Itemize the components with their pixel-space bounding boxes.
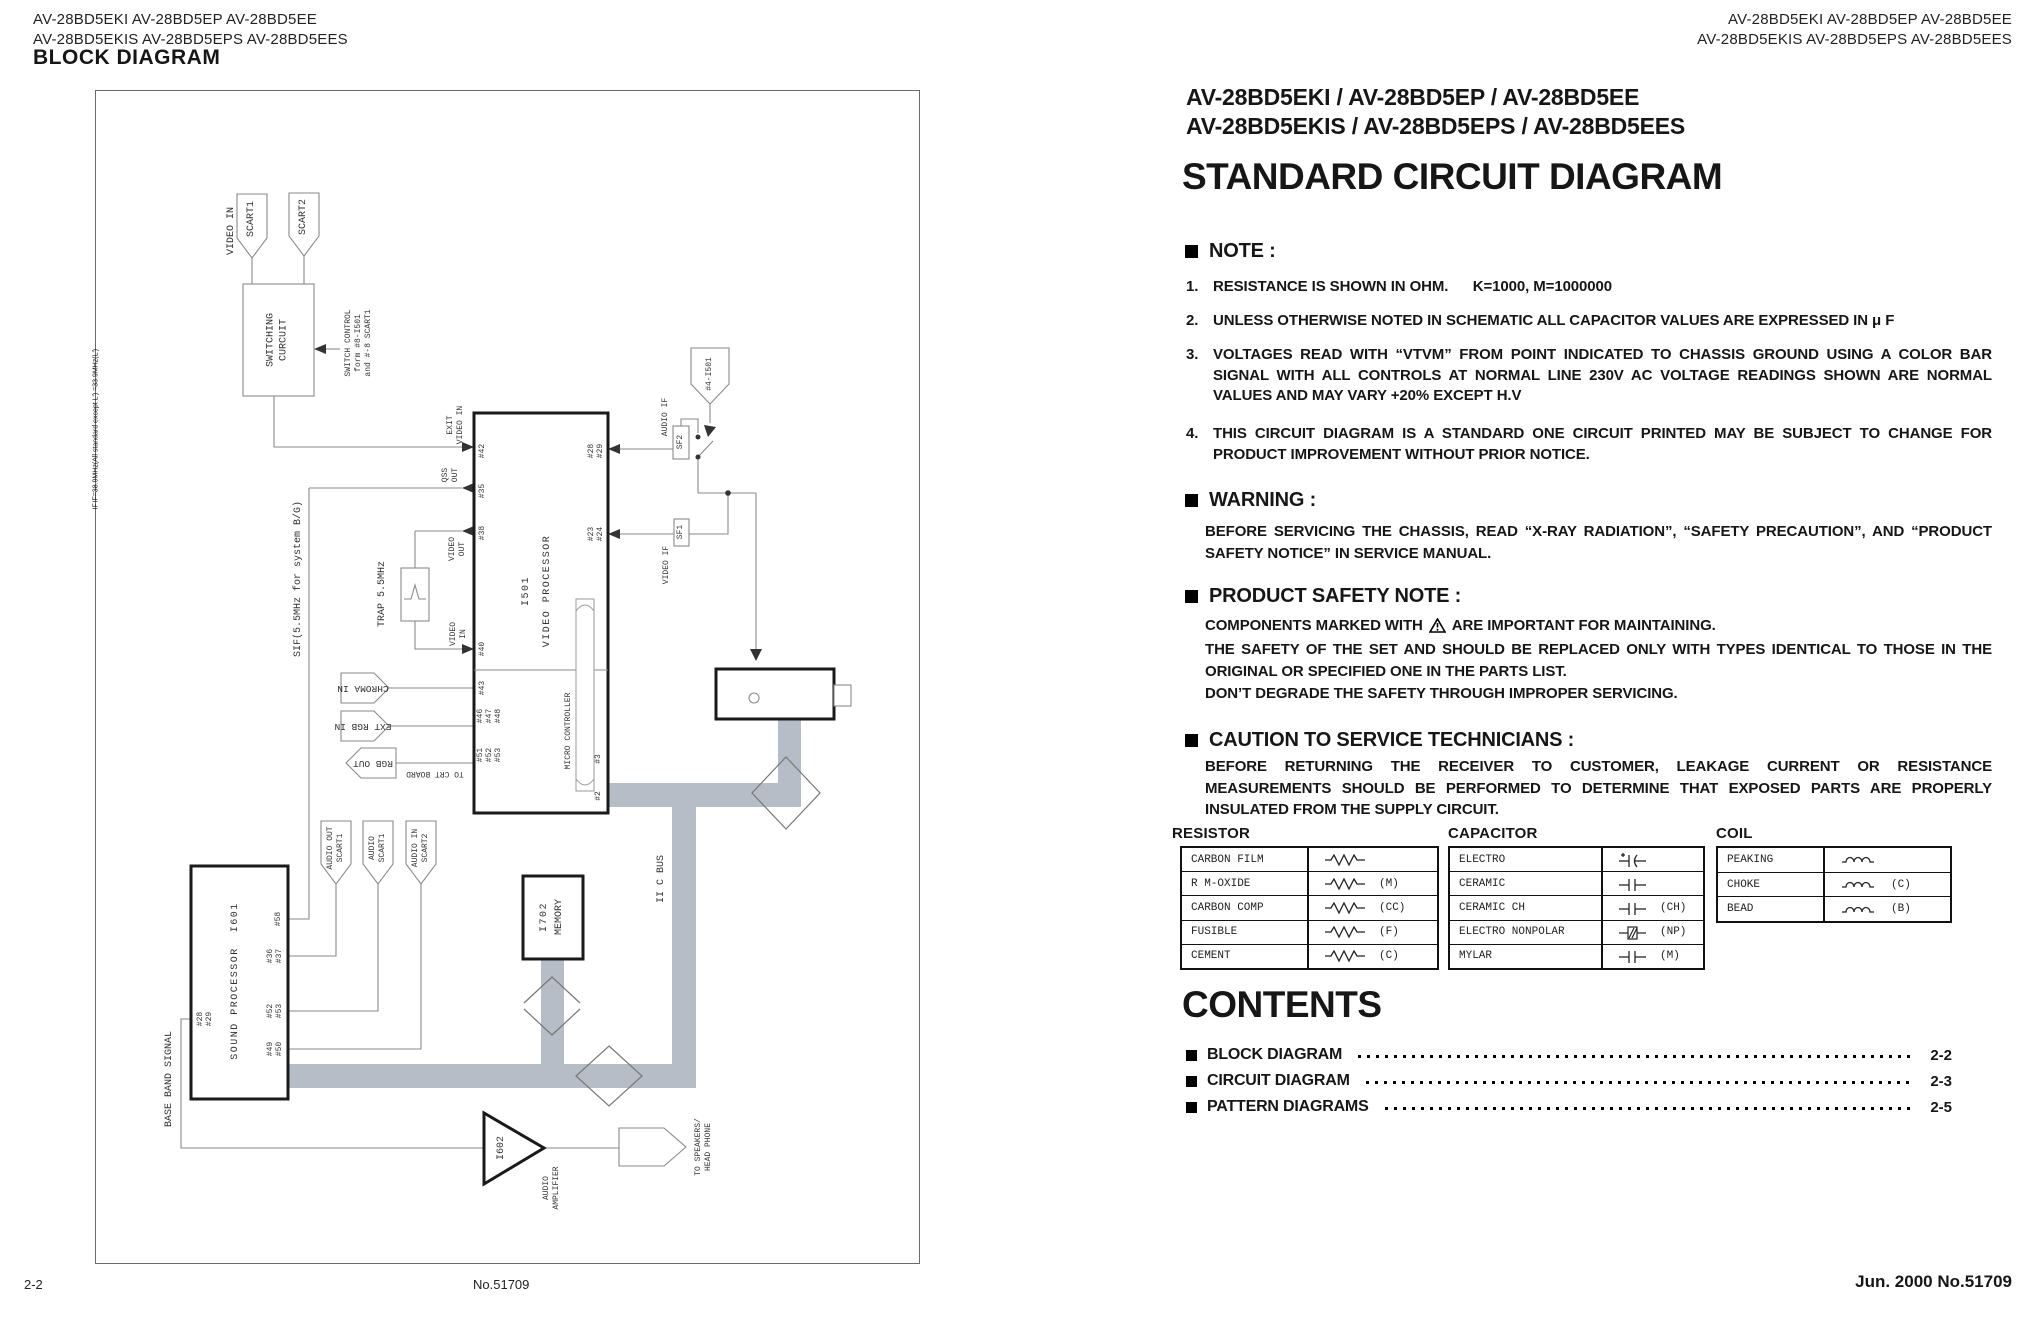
sf2-label: SF2 <box>676 435 686 449</box>
pin-42: #42 <box>478 444 488 458</box>
note-item-number: 2. <box>1186 311 1213 332</box>
pin-35: #35 <box>478 484 488 498</box>
contents-item-label: CIRCUIT DIAGRAM <box>1207 1072 1350 1090</box>
rgb-out-label: RGB OUT <box>353 757 393 769</box>
table-row: FUSIBLE (F) <box>1182 920 1437 944</box>
audio-out-scart1-label: AUDIO OUT SCART1 <box>326 826 346 869</box>
note-item-text: THIS CIRCUIT DIAGRAM IS A STANDARD ONE C… <box>1213 424 1992 465</box>
scart1-label: SCART1 <box>246 201 259 237</box>
warning-heading-text: WARNING : <box>1209 489 1316 512</box>
sf1-label: SF1 <box>676 525 686 539</box>
row-code: (C) <box>1379 950 1399 962</box>
capacitor-mylar-symbol <box>1619 948 1646 964</box>
row-name: CHOKE <box>1718 873 1825 897</box>
row-code: (CH) <box>1660 902 1686 914</box>
square-bullet-icon <box>1186 1050 1197 1061</box>
conn-4-i501-label: #4-I501 <box>705 357 715 391</box>
if-switch <box>696 435 731 496</box>
row-code: (C) <box>1891 879 1911 891</box>
pin-48: #48 <box>494 709 504 723</box>
sp-pin-50: #50 <box>275 1042 285 1056</box>
capacitor-table-title: CAPACITOR <box>1448 825 1538 842</box>
note-heading: NOTE : <box>1185 240 1276 263</box>
coil-table: PEAKING CHOKE (C) BEAD (B) <box>1716 846 1952 923</box>
sound-processor-label: SOUND PROCESSOR I601 <box>230 902 243 1060</box>
to-speakers-label: TO SPEAKERS/ HEAD PHONE <box>694 1118 714 1176</box>
capacitor-ceramic-symbol <box>1619 900 1646 916</box>
row-name: BEAD <box>1718 897 1825 921</box>
header-models-left: AV-28BD5EKI AV-28BD5EP AV-28BD5EE AV-28B… <box>33 10 348 50</box>
footer-date-number: Jun. 2000 No.51709 <box>1855 1272 2012 1292</box>
contents-item-label: BLOCK DIAGRAM <box>1207 1046 1342 1064</box>
micro-controller-label: MICRO CONTROLLER <box>564 693 574 770</box>
dotted-leader <box>1358 1055 1914 1058</box>
product-safety-paragraph: THE SAFETY OF THE SET AND SHOULD BE REPL… <box>1205 639 1992 682</box>
video-out-label: VIDEO OUT <box>448 537 468 561</box>
vp-internal-bus <box>576 599 594 791</box>
product-safety-heading: PRODUCT SAFETY NOTE : <box>1185 585 1461 608</box>
pin-2: #2 <box>594 791 604 801</box>
warning-heading: WARNING : <box>1185 489 1316 512</box>
qss-out-label: QSS OUT <box>441 468 461 482</box>
note-item-4: 4. THIS CIRCUIT DIAGRAM IS A STANDARD ON… <box>1186 424 1992 465</box>
contents-item: BLOCK DIAGRAM 2-2 <box>1186 1046 1952 1064</box>
resistor-symbol <box>1325 902 1365 914</box>
warning-body: BEFORE SERVICING THE CHASSIS, READ “X-RA… <box>1205 521 1992 564</box>
tuner-box <box>716 669 834 719</box>
manual-page: AV-28BD5EKI AV-28BD5EP AV-28BD5EE AV-28B… <box>0 0 2042 1324</box>
audio-if-label: AUDIO IF <box>661 398 671 436</box>
memory-label: MEMORY <box>554 899 567 935</box>
sp-pin-58: #58 <box>274 912 284 926</box>
table-row: R M-OXIDE (M) <box>1182 871 1437 895</box>
sif-label: SIF(5.5MHz for system B/G) <box>293 501 306 657</box>
pin-43: #43 <box>478 681 488 695</box>
row-name: CARBON COMP <box>1182 896 1309 919</box>
row-name: CERAMIC CH <box>1450 896 1603 919</box>
safety-warning-triangle-icon <box>1429 618 1446 633</box>
square-bullet-icon <box>1186 1102 1197 1113</box>
trap-box <box>401 568 429 621</box>
capacitor-electro-symbol <box>1619 852 1646 868</box>
contents-item-page: 2-2 <box>1930 1047 1952 1064</box>
trap-label: TRAP 5.5MHz <box>377 561 390 627</box>
row-code: (F) <box>1379 926 1399 938</box>
row-name: ELECTRO <box>1450 848 1603 871</box>
row-code: (M) <box>1660 950 1680 962</box>
resistor-table: CARBON FILM R M-OXIDE (M) CARBON COMP (C… <box>1180 846 1439 970</box>
row-code: (B) <box>1891 903 1911 915</box>
caution-body: BEFORE RETURNING THE RECEIVER TO CUSTOME… <box>1205 756 1992 821</box>
note-item-text: RESISTANCE IS SHOWN IN OHM. K=1000, M=10… <box>1213 277 1992 298</box>
switching-circuit-label: SWITCHING CURCUIT <box>266 313 291 367</box>
square-bullet-icon <box>1185 245 1198 258</box>
to-crt-board-label: TO CRT BOARD <box>406 768 464 778</box>
row-name: ELECTRO NONPOLAR <box>1450 921 1603 944</box>
coil-symbol <box>1841 853 1877 866</box>
pin-3: #3 <box>594 754 604 764</box>
switch-control-label: SWITCH CONTROL form #8-I501 and #-8 SCAR… <box>344 309 374 376</box>
contents-item: CIRCUIT DIAGRAM 2-3 <box>1186 1072 1952 1090</box>
capacitor-table: ELECTRO CERAMIC CERAMIC CH (CH) ELECTRO … <box>1448 846 1705 970</box>
chroma-in-label: CHROMA IN <box>337 682 388 694</box>
footer-doc-number: No.51709 <box>473 1277 529 1292</box>
i602-label: I602 <box>496 1136 509 1160</box>
resistor-table-title: RESISTOR <box>1172 825 1250 842</box>
coil-table-title: COIL <box>1716 825 1753 842</box>
row-code: (CC) <box>1379 902 1405 914</box>
row-name: PEAKING <box>1718 848 1825 872</box>
row-name: R M-OXIDE <box>1182 872 1309 895</box>
table-row: CERAMIC CH (CH) <box>1450 895 1703 919</box>
row-code: (NP) <box>1660 926 1686 938</box>
caution-heading-text: CAUTION TO SERVICE TECHNICIANS : <box>1209 729 1574 752</box>
caution-heading: CAUTION TO SERVICE TECHNICIANS : <box>1185 729 1574 752</box>
block-diagram-title: BLOCK DIAGRAM <box>33 46 220 70</box>
pin-40: #40 <box>478 642 488 656</box>
table-row: ELECTRO <box>1450 848 1703 871</box>
note-item-3: 3. VOLTAGES READ WITH “VTVM” FROM POINT … <box>1186 345 1992 407</box>
audio-scart1-label: AUDIO SCART1 <box>368 834 388 863</box>
contents-item-page: 2-5 <box>1930 1099 1952 1116</box>
pin-53: #53 <box>494 748 504 762</box>
coil-symbol <box>1841 878 1877 891</box>
exit-video-in-label: EXIT VIDEO IN <box>446 406 466 444</box>
audio-amplifier-triangle <box>484 1113 544 1184</box>
capacitor-ceramic-symbol <box>1619 876 1646 892</box>
i702-label: I702 <box>539 902 552 932</box>
sp-pin-53: #53 <box>275 1004 285 1018</box>
row-name: CEMENT <box>1182 945 1309 968</box>
contents-item-page: 2-3 <box>1930 1073 1952 1090</box>
base-band-signal-label: BASE BAND SIGNAL <box>164 1031 177 1127</box>
note-item-1: 1. RESISTANCE IS SHOWN IN OHM. K=1000, M… <box>1186 277 1992 298</box>
i501-label: I501 <box>521 576 534 606</box>
block-diagram-frame: VIDEO IN SCART1 SCART2 SWITCHING CURCUIT… <box>95 90 920 1264</box>
model-line-2: AV-28BD5EKIS / AV-28BD5EPS / AV-28BD5EES <box>1186 113 1685 140</box>
psn-line1a: COMPONENTS MARKED WITH <box>1205 617 1423 634</box>
footer-page-number: 2-2 <box>24 1277 43 1292</box>
table-row: ELECTRO NONPOLAR (NP) <box>1450 920 1703 944</box>
video-in-pin-label: VIDEO IN <box>449 622 469 646</box>
dotted-leader <box>1385 1107 1915 1110</box>
sp-pin-37: #37 <box>275 949 285 963</box>
note-item-text: VOLTAGES READ WITH “VTVM” FROM POINT IND… <box>1213 345 1992 407</box>
video-in-label: VIDEO IN <box>226 207 239 255</box>
sp-pin-29: #29 <box>205 1012 215 1026</box>
video-if-label: VIDEO IF <box>662 546 672 584</box>
row-name: FUSIBLE <box>1182 921 1309 944</box>
ext-rgb-in-label: EXT RGB IN <box>334 720 391 732</box>
pin-29: #29 <box>596 444 606 458</box>
pin-38: #38 <box>478 526 488 540</box>
iic-bus-label: II C BUS <box>656 855 669 903</box>
note-item-number: 1. <box>1186 277 1213 298</box>
table-row: CHOKE (C) <box>1718 872 1950 897</box>
row-name: CARBON FILM <box>1182 848 1309 871</box>
tuner-if-label: IF <box>93 0 100 510</box>
product-safety-line1: COMPONENTS MARKED WITH ARE IMPORTANT FOR… <box>1205 617 1716 634</box>
note-item-text: UNLESS OTHERWISE NOTED IN SCHEMATIC ALL … <box>1213 311 1992 332</box>
pin-24: #24 <box>596 527 606 541</box>
table-row: PEAKING <box>1718 848 1950 872</box>
dotted-leader <box>1366 1081 1915 1084</box>
resistor-symbol <box>1325 854 1365 866</box>
resistor-symbol <box>1325 950 1365 962</box>
row-name: CERAMIC <box>1450 872 1603 895</box>
square-bullet-icon <box>1185 734 1198 747</box>
table-row: MYLAR (M) <box>1450 944 1703 968</box>
speakers-connector <box>619 1128 686 1166</box>
block-diagram-graphics <box>96 91 919 1263</box>
table-row: CEMENT (C) <box>1182 944 1437 968</box>
product-safety-heading-text: PRODUCT SAFETY NOTE : <box>1209 585 1461 608</box>
contents-title: CONTENTS <box>1182 984 1382 1026</box>
resistor-symbol <box>1325 878 1365 890</box>
row-name: MYLAR <box>1450 945 1603 968</box>
audio-amplifier-label: AUDIO AMPLIFIER <box>542 1166 562 1209</box>
note-item-2: 2. UNLESS OTHERWISE NOTED IN SCHEMATIC A… <box>1186 311 1992 332</box>
contents-item: PATTERN DIAGRAMS 2-5 <box>1186 1098 1952 1116</box>
table-row: BEAD (B) <box>1718 896 1950 921</box>
note-heading-text: NOTE : <box>1209 240 1276 263</box>
header-models-right: AV-28BD5EKI AV-28BD5EP AV-28BD5EE AV-28B… <box>1697 10 2012 50</box>
page-title: STANDARD CIRCUIT DIAGRAM <box>1182 156 1722 198</box>
table-row: CERAMIC <box>1450 871 1703 895</box>
resistor-symbol <box>1325 926 1365 938</box>
scart2-label: SCART2 <box>298 199 311 235</box>
capacitor-nonpolar-symbol <box>1619 924 1646 940</box>
psn-line1b: ARE IMPORTANT FOR MAINTAINING. <box>1452 617 1716 634</box>
note-item-number: 4. <box>1186 424 1213 465</box>
table-row: CARBON FILM <box>1182 848 1437 871</box>
product-safety-last-line: DON’T DEGRADE THE SAFETY THROUGH IMPROPE… <box>1205 683 1992 705</box>
coil-symbol <box>1841 903 1877 916</box>
square-bullet-icon <box>1185 494 1198 507</box>
square-bullet-icon <box>1186 1076 1197 1087</box>
audio-in-scart2-label: AUDIO IN SCART2 <box>411 829 431 867</box>
antenna-connector <box>834 685 851 706</box>
table-row: CARBON COMP (CC) <box>1182 895 1437 919</box>
row-code: (M) <box>1379 878 1399 890</box>
square-bullet-icon <box>1185 590 1198 603</box>
contents-item-label: PATTERN DIAGRAMS <box>1207 1098 1369 1116</box>
video-processor-label: VIDEO PROCESSOR <box>542 535 555 648</box>
model-line-1: AV-28BD5EKI / AV-28BD5EP / AV-28BD5EE <box>1186 84 1639 111</box>
note-item-number: 3. <box>1186 345 1213 407</box>
